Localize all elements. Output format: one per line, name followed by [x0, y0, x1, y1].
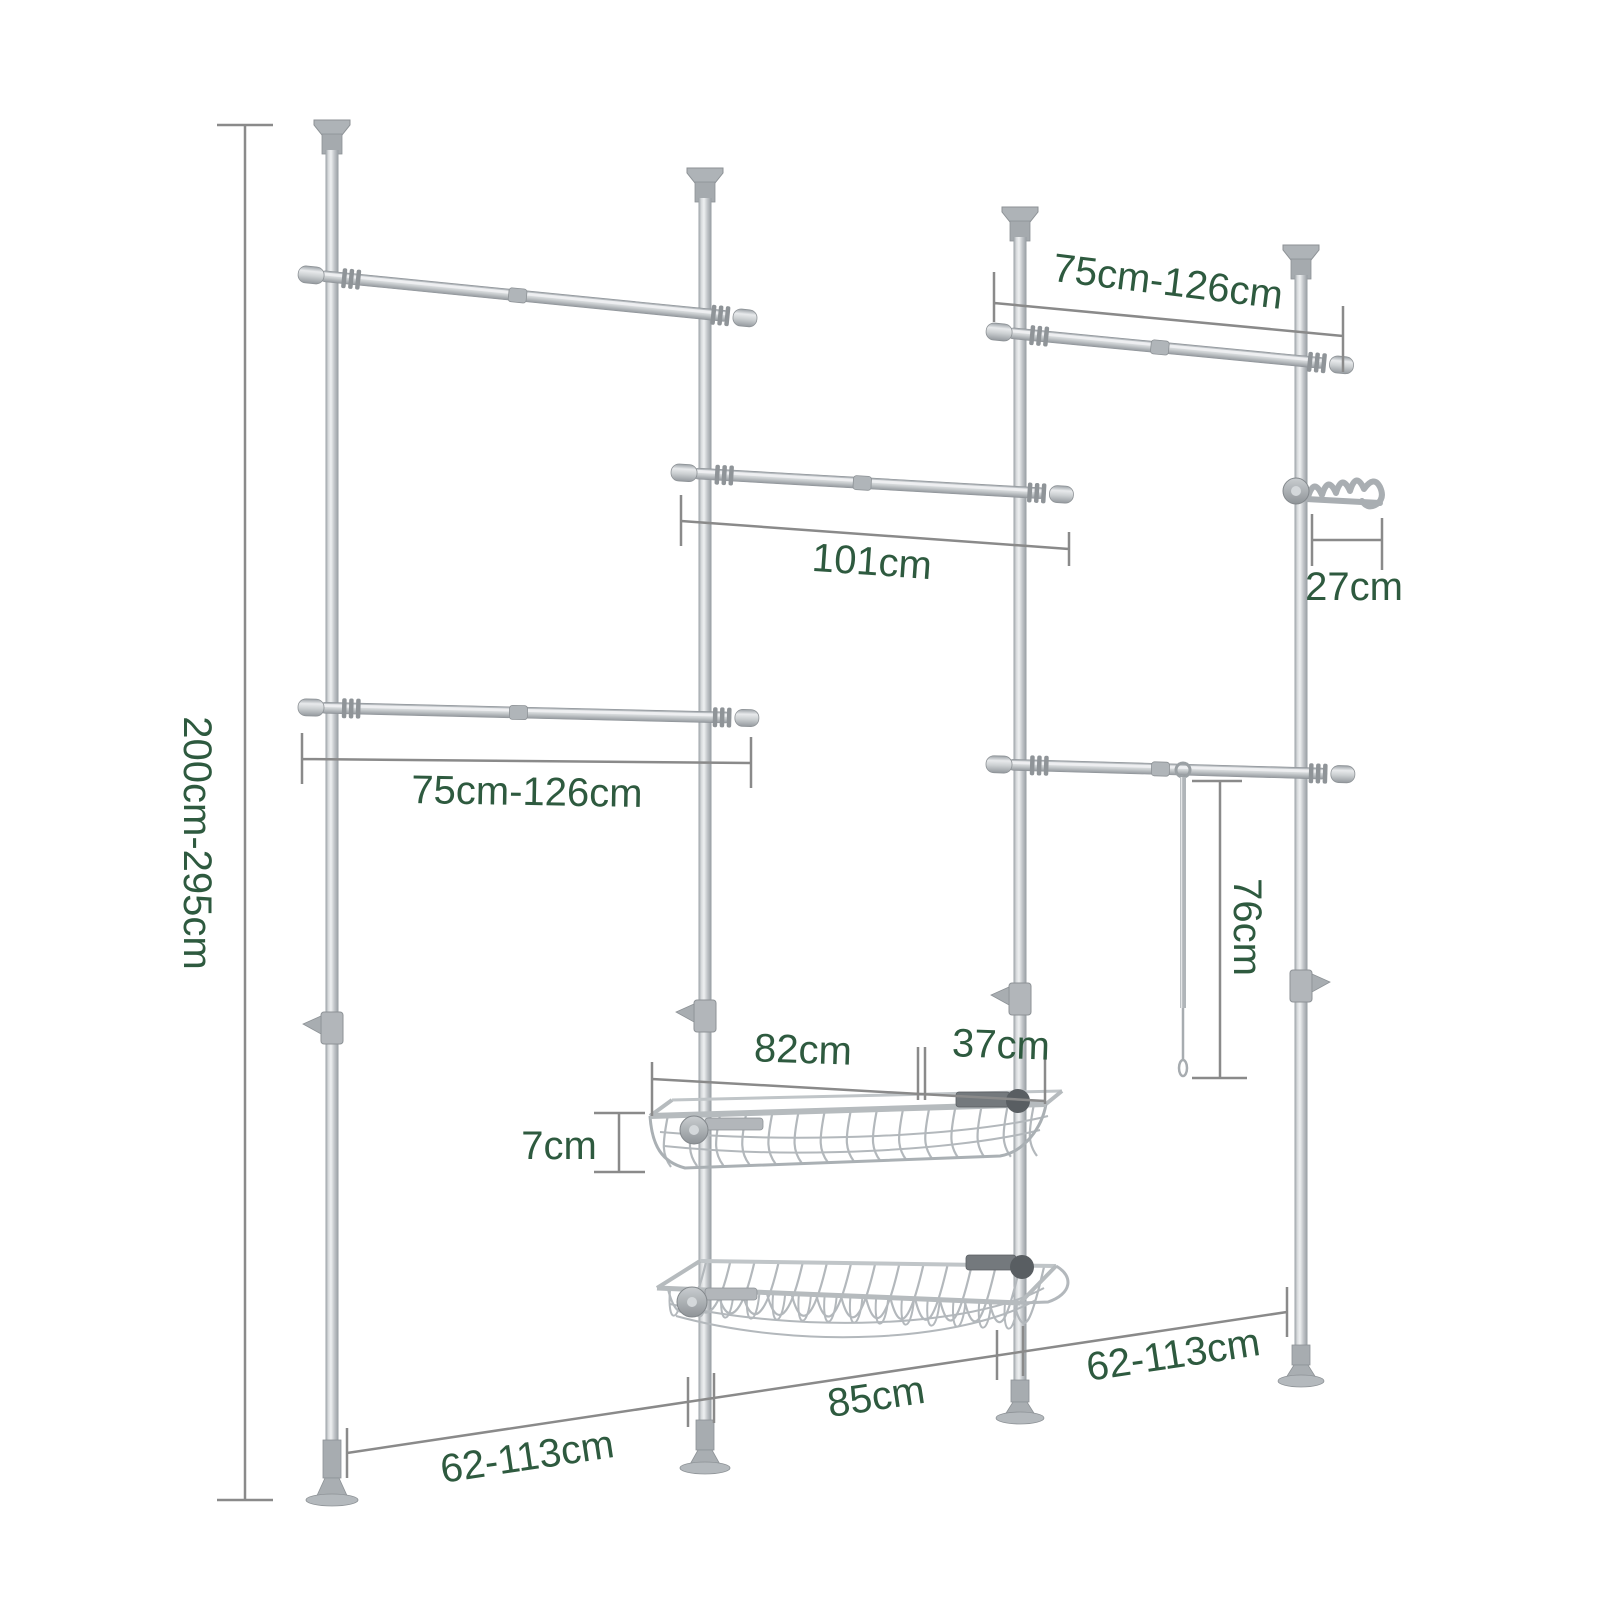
- label-overall-height: 200cm-295cm: [175, 716, 219, 969]
- rail-middle-right-clamp-ring-right: [1309, 763, 1314, 783]
- pole-2: [676, 168, 730, 1474]
- basket-wire: [798, 1295, 810, 1321]
- rail-middle-left: [298, 697, 759, 728]
- pole-2-foot-pad: [680, 1462, 730, 1474]
- label-hanging-rod: 76cm: [1225, 878, 1269, 976]
- pole-3: [991, 207, 1044, 1424]
- rail-middle-left-clamp-ring-right: [727, 708, 732, 728]
- rail-middle-left-end-cap-left: [298, 699, 324, 717]
- pole-4-tension-lever: [1312, 974, 1330, 992]
- rail-middle-left-clamp-ring-left: [356, 699, 361, 719]
- basket-clamp-arm-lower-right: [966, 1255, 1016, 1270]
- rail-middle-center-clamp-ring-right: [1034, 483, 1040, 503]
- rail-middle-right-clamp-ring-left: [1030, 755, 1035, 775]
- rail-top-left-end-cap-left: [297, 265, 325, 284]
- rail-top-right-clamp-ring-left: [1029, 325, 1035, 345]
- rail-top-right-telescopic-joint: [1150, 340, 1169, 356]
- basket-clamp-arm-lower-left: [705, 1288, 757, 1300]
- pole-4-foot-pad: [1278, 1375, 1324, 1387]
- label-basket-depth: 37cm: [951, 1021, 1050, 1068]
- rail-top-right-end-cap-right: [1329, 355, 1355, 374]
- rail-middle-center-telescopic-joint: [853, 475, 872, 490]
- hanging-rails: [297, 264, 1355, 785]
- rail-middle-center-clamp-ring-left: [728, 465, 734, 485]
- rail-middle-left-telescopic-joint: [509, 705, 527, 719]
- basket-clamp-arm-upper-left: [705, 1118, 763, 1130]
- rail-top-left-clamp-ring-left: [348, 269, 354, 289]
- pole-4-foot-sleeve: [1292, 1345, 1310, 1365]
- rail-middle-center-clamp-ring-left: [721, 465, 727, 485]
- wardrobe-rack-diagram: 200cm-295cm 75cm-126cm 101cm 27cm 75cm-1…: [0, 0, 1600, 1600]
- hook-rack-dimension-line: [1312, 514, 1382, 570]
- product-dimension-diagram: 200cm-295cm 75cm-126cm 101cm 27cm 75cm-1…: [0, 0, 1600, 1600]
- pole-1-ceiling-cap: [314, 120, 350, 135]
- overall-height-dimension-line: [217, 125, 273, 1500]
- rail-middle-right-telescopic-joint: [1151, 762, 1169, 777]
- hook-rack-knob-center: [1291, 486, 1301, 496]
- pole-4-ceiling-cap: [1283, 245, 1319, 260]
- rail-middle-right-clamp-ring-right: [1323, 764, 1328, 784]
- rail-middle-left-clamp-ring-right: [720, 707, 725, 727]
- basket-wire: [676, 1300, 1036, 1337]
- pole-3-foot-sleeve: [1011, 1380, 1029, 1402]
- basket-wire: [850, 1297, 862, 1323]
- pole-2-tube: [699, 198, 712, 1420]
- rail-top-right-end-cap-left: [985, 322, 1013, 341]
- pole-3-tube: [1014, 237, 1027, 1380]
- label-basket-height: 7cm: [521, 1124, 597, 1168]
- basket-wire: [951, 1106, 958, 1158]
- label-middle-rail: 101cm: [811, 536, 934, 588]
- pole-4-tension-collar: [1290, 970, 1312, 1002]
- pole-4-tube: [1295, 275, 1308, 1345]
- rail-middle-left-clamp-ring-left: [342, 698, 347, 718]
- rail-top-left-end-cap-right: [732, 308, 758, 327]
- rail-middle-center-end-cap-left: [671, 464, 698, 482]
- basket-wire: [821, 1110, 828, 1162]
- rail-top-left-clamp-ring-left: [355, 269, 361, 289]
- rail-middle-center-clamp-ring-right: [1027, 482, 1033, 502]
- pole-2-foot-sleeve: [696, 1420, 714, 1450]
- rail-top-right-clamp-ring-right: [1314, 352, 1320, 372]
- basket-height-dimension-line: [594, 1113, 645, 1172]
- rail-middle-right-clamp-ring-left: [1044, 756, 1049, 776]
- pole-2-tension-lever: [676, 1004, 694, 1022]
- rail-top-left: [297, 264, 758, 329]
- basket-wire: [876, 1298, 888, 1324]
- basket-wire: [873, 1109, 880, 1161]
- label-floor-span-left: 62-113cm: [437, 1422, 617, 1492]
- rail-middle-left-clamp-ring-right: [713, 707, 718, 727]
- basket-wire: [978, 1106, 985, 1158]
- rail-middle-center-clamp-ring-left: [714, 465, 720, 485]
- label-middle-left-rail: 75cm-126cm: [411, 768, 643, 816]
- rail-middle-right-end-cap-left: [986, 756, 1012, 774]
- pole-3-foot-pad: [996, 1412, 1044, 1424]
- rail-top-right-clamp-ring-left: [1036, 326, 1042, 346]
- rail-top-left-clamp-ring-right: [724, 306, 730, 326]
- basket-clamp-knob-center: [689, 1125, 699, 1135]
- pole-2-tension-collar: [694, 1000, 716, 1032]
- label-floor-span-right: 62-113cm: [1083, 1320, 1263, 1390]
- rail-top-left-clamp-ring-left: [341, 268, 347, 288]
- pole-1-foot-pad: [306, 1494, 358, 1506]
- pole-1-foot-sleeve: [323, 1440, 341, 1478]
- pole-1: [303, 120, 358, 1506]
- rail-middle-right-end-cap-right: [1331, 765, 1355, 783]
- pole-1-tension-collar: [321, 1012, 343, 1044]
- pole-3-ceiling-cap: [1002, 207, 1038, 222]
- strap-end-loop: [1179, 1060, 1187, 1076]
- hook-rack-bar: [1306, 499, 1380, 503]
- label-hook-rack: 27cm: [1305, 565, 1403, 609]
- pole-3-tension-lever: [991, 987, 1009, 1005]
- rail-top-right-clamp-ring-right: [1307, 352, 1313, 372]
- basket-clamp-knob-center: [687, 1297, 697, 1307]
- rail-middle-center: [670, 462, 1073, 505]
- basket-wire: [664, 1130, 1040, 1153]
- rail-top-left-clamp-ring-right: [717, 305, 723, 325]
- hanging-strap: [1176, 763, 1190, 1076]
- rail-middle-center-clamp-ring-right: [1041, 483, 1047, 503]
- pole-3-tension-collar: [1009, 983, 1031, 1015]
- label-top-right-rail: 75cm-126cm: [1050, 246, 1285, 318]
- rail-middle-right-clamp-ring-left: [1037, 755, 1042, 775]
- pole-4: [1278, 245, 1330, 1387]
- hook-rack: [1283, 478, 1382, 506]
- basket-wire: [824, 1296, 836, 1322]
- basket-clamp-knob-lower-right: [1010, 1255, 1034, 1279]
- rail-top-right-clamp-ring-left: [1043, 326, 1049, 346]
- rail-middle-center-end-cap-right: [1049, 485, 1074, 503]
- rail-middle-left-clamp-ring-left: [349, 698, 354, 718]
- label-floor-span-middle: 85cm: [825, 1368, 928, 1426]
- pole-2-ceiling-cap: [687, 168, 723, 183]
- basket-clamps: [677, 1089, 1034, 1317]
- rail-top-left-telescopic-joint: [508, 288, 527, 304]
- pole-1-tube: [326, 150, 339, 1440]
- rail-middle-left-end-cap-right: [735, 709, 759, 727]
- basket-wire: [847, 1110, 854, 1162]
- basket-wire: [1004, 1105, 1011, 1157]
- rail-middle-right-clamp-ring-right: [1316, 763, 1321, 783]
- rail-top-right-clamp-ring-right: [1321, 353, 1327, 373]
- label-basket-length: 82cm: [753, 1026, 852, 1073]
- pole-1-tension-lever: [303, 1016, 321, 1034]
